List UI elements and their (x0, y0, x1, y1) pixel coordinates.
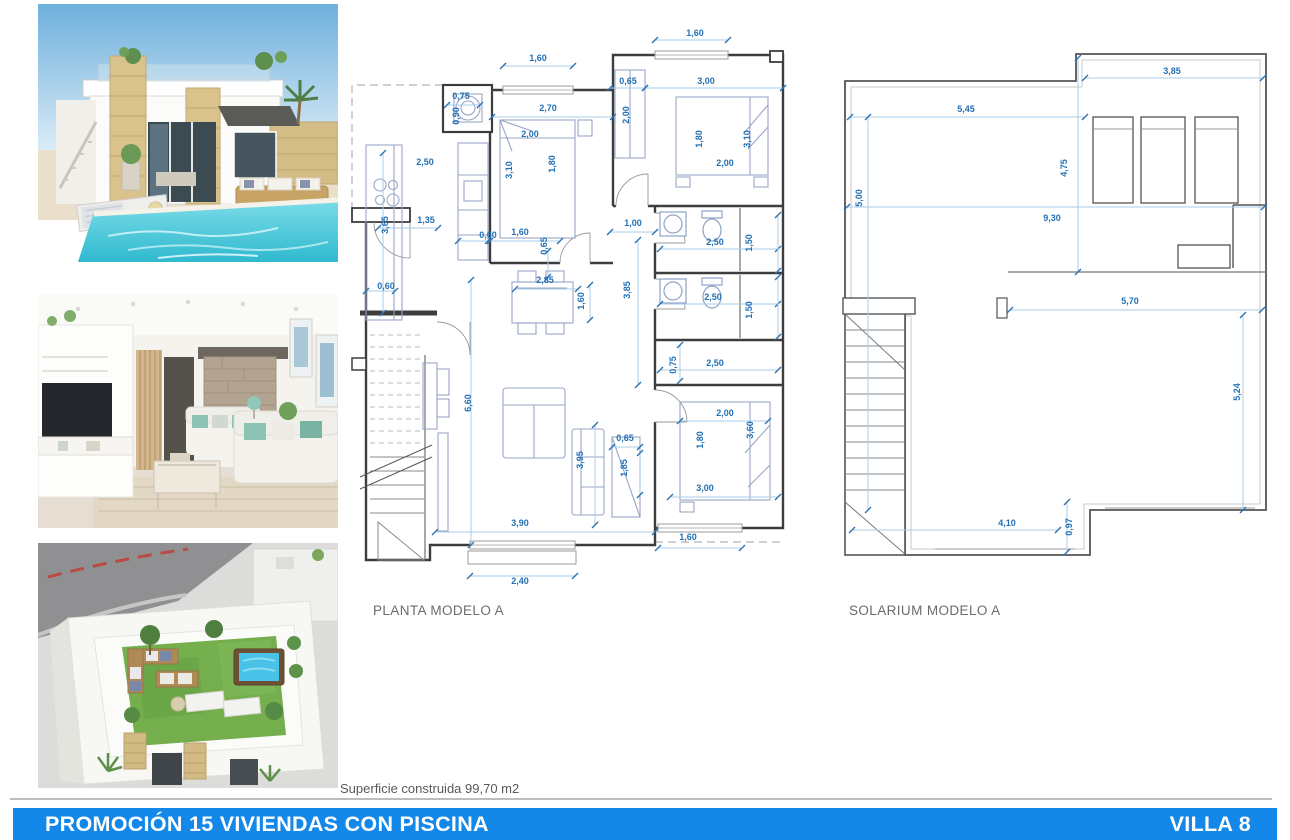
planter (121, 144, 141, 190)
footer-separator (10, 798, 1272, 800)
bed-3 (680, 402, 770, 512)
dimension-label: 0,97 (1064, 518, 1074, 536)
dimension-label: 1,50 (744, 234, 754, 252)
photo-villa-exterior (38, 4, 338, 262)
dimension-label: 5,24 (1232, 383, 1242, 401)
dimension-label: 1,80 (695, 431, 705, 449)
dimension-label: 3,85 (622, 281, 632, 299)
sofa-side (572, 429, 604, 515)
dimension-label: 0,60 (377, 281, 395, 291)
dimension-label: 3,00 (696, 483, 714, 493)
dimension-label: 4,75 (1059, 159, 1069, 177)
window (234, 132, 276, 178)
dimension-label: 5,45 (957, 104, 975, 114)
dimension-label: 1,60 (679, 532, 697, 542)
floor-plan-planta: 1,601,600,750,902,702,003,101,800,653,00… (350, 25, 790, 595)
dimension-label: 2,50 (706, 237, 724, 247)
promo-bar: PROMOCIÓN 15 VIVIENDAS CON PISCINA VILLA… (13, 808, 1277, 840)
sunbeds (1093, 117, 1238, 203)
solarium-label: SOLARIUM MODELO A (849, 603, 1001, 618)
rooftop-illustration (38, 543, 338, 788)
brochure-page: 1,601,600,750,902,702,003,101,800,653,00… (0, 0, 1290, 840)
dimension-label: 0,65 (619, 76, 637, 86)
wood-slat-panel (136, 350, 162, 470)
terrace-step (468, 551, 576, 564)
dimension-label: 2,00 (716, 158, 734, 168)
dimension-label: 4,10 (998, 518, 1016, 528)
dimension-label: 2,40 (511, 576, 529, 586)
dimension-label: 0,65 (616, 433, 634, 443)
dimension-label: 2,00 (621, 106, 631, 124)
dimension-label: 3,85 (1163, 66, 1181, 76)
dimension-label: 3,90 (511, 518, 529, 528)
dimension-label: 5,70 (1121, 296, 1139, 306)
dimension-label: 3,60 (745, 421, 755, 439)
villa-number: VILLA 8 (1170, 812, 1251, 837)
dimension-label: 9,30 (1043, 213, 1061, 223)
stairs (360, 335, 432, 560)
dimension-label: 2,00 (716, 408, 734, 418)
dimension-label: 1,35 (417, 215, 435, 225)
dimension-label: 1,00 (624, 218, 642, 228)
dimension-label: 0,60 (479, 230, 497, 240)
dimension-label: 1,80 (694, 130, 704, 148)
dimension-label: 2,50 (416, 157, 434, 167)
floor-plan-solarium: 3,855,454,755,009,305,705,244,100,97 (835, 40, 1275, 570)
dimension-label: 1,85 (619, 459, 629, 477)
dimension-label: 3,00 (697, 76, 715, 86)
dimension-label: 5,00 (854, 189, 864, 207)
planta-label: PLANTA MODELO A (373, 603, 504, 618)
dimension-label: 3,10 (742, 130, 752, 148)
dimension-label: 1,80 (547, 155, 557, 173)
dimension-label: 1,60 (529, 53, 547, 63)
photo-living-room (38, 295, 338, 528)
dimension-label: 3,65 (380, 216, 390, 234)
door-arcs (374, 174, 687, 422)
dimension-label: 2,00 (521, 129, 539, 139)
bench (1178, 245, 1230, 268)
dimension-label: 2,50 (706, 358, 724, 368)
awning (218, 106, 300, 126)
photo-rooftop-aerial (38, 543, 338, 788)
dimension-label: 6,60 (463, 394, 473, 412)
dimension-label: 3,95 (575, 451, 585, 469)
tv-wall-unit (38, 310, 133, 497)
dimension-label: 0,75 (452, 91, 470, 101)
living-room-illustration (38, 295, 338, 528)
glass-door (148, 122, 216, 202)
dimension-label: 1,60 (511, 227, 529, 237)
hot-tub (234, 649, 284, 685)
dimension-label: 3,10 (504, 161, 514, 179)
dimension-label: 2,50 (704, 292, 722, 302)
dimension-label: 1,60 (686, 28, 704, 38)
dimension-label: 2,85 (536, 275, 554, 285)
villa-pool-illustration (38, 4, 338, 262)
dimension-label: 2,70 (539, 103, 557, 113)
surface-note: Superficie construida 99,70 m2 (340, 781, 519, 796)
dimension-label: 0,65 (539, 237, 549, 255)
promo-title: PROMOCIÓN 15 VIVIENDAS CON PISCINA (45, 812, 489, 837)
dimension-label: 0,75 (668, 356, 678, 374)
dimension-label: 1,50 (744, 301, 754, 319)
right-sofa (234, 411, 338, 483)
solarium-stairs (843, 298, 915, 555)
sofa-main (503, 388, 565, 458)
dimension-label: 0,90 (451, 107, 461, 125)
plant (279, 402, 297, 420)
planta-drawing: 1,601,600,750,902,702,003,101,800,653,00… (350, 25, 790, 595)
solarium-drawing: 3,855,454,755,009,305,705,244,100,97 (835, 40, 1275, 570)
dimension-label: 1,60 (576, 292, 586, 310)
planta-dimension-labels: 1,601,600,750,902,702,003,101,800,653,00… (377, 28, 755, 586)
